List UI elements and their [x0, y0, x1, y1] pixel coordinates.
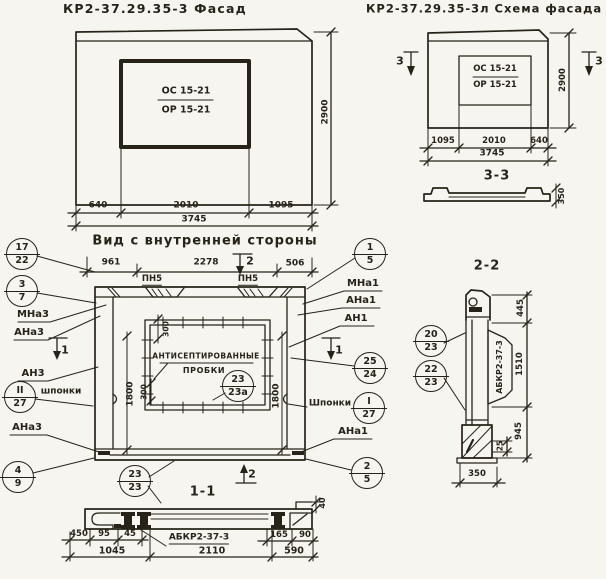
label-an1: АН1 — [344, 314, 367, 324]
callout-bottom-number: 22 — [15, 256, 28, 266]
sec22-dim-445: 445 — [517, 299, 526, 317]
callout-bottom-number: 27 — [13, 399, 26, 409]
sec22-dim-1510: 1510 — [516, 352, 525, 376]
scheme-section-label: 3-3 — [484, 170, 511, 183]
view-section-mark-1-right: 1 — [335, 345, 343, 356]
callout-top-number: 25 — [363, 357, 376, 367]
view-dim-300-top: 300 — [162, 321, 170, 337]
callout-top-number: 17 — [15, 243, 28, 253]
sec11-dim-90: 90 — [299, 531, 311, 540]
callout-bottom-number: 5 — [367, 256, 374, 266]
label-shponki-left: шпонки — [41, 388, 82, 397]
facade-dim-2010: 2010 — [173, 202, 198, 211]
callout-20-23: 20 23 — [415, 325, 447, 357]
facade-dim-height: 2900 — [322, 99, 331, 124]
view-section-mark-2-top: 2 — [246, 256, 254, 267]
view-dim-300-bottom: 300 — [140, 384, 148, 400]
scheme-section-mark-left: 3 — [396, 56, 404, 67]
sec11-profile — [85, 502, 312, 529]
scheme-dim-640: 640 — [530, 137, 548, 146]
callout-bottom-number: 23 — [424, 378, 437, 388]
view-leader-lines — [10, 256, 382, 503]
facade-dim-total: 3745 — [181, 216, 206, 225]
sec22-dim-350: 350 — [468, 470, 486, 479]
callout-1-5: 1 5 — [354, 238, 386, 270]
sec11-dim-450: 450 — [70, 530, 88, 539]
callout-top-number: 20 — [424, 330, 437, 340]
callout-22-23: 22 23 — [415, 360, 447, 392]
label-ana1-bottom: АНа1 — [338, 427, 368, 437]
callout-I-27: I 27 — [353, 392, 385, 424]
label-mna3: МНа3 — [17, 310, 49, 320]
sec11-dim-95: 95 — [98, 530, 110, 539]
facade-dim-640: 640 — [89, 202, 108, 211]
facade-panel-outline — [76, 29, 312, 205]
scheme-dim-2010: 2010 — [482, 137, 506, 146]
view-section-label-1-1: 1-1 — [190, 486, 217, 499]
facade-title: КР2-37.29.35-3 Фасад — [63, 3, 247, 16]
label-antiseptic-plugs-line2: ПРОБКИ — [183, 367, 225, 375]
callout-bottom-number: 23 — [424, 343, 437, 353]
sec22-dim-945: 945 — [515, 422, 524, 440]
callout-bottom-number: 24 — [363, 370, 376, 380]
callout-top-number: 22 — [424, 365, 437, 375]
scheme-dim-height: 2900 — [559, 68, 568, 92]
callout-top-number: II — [16, 386, 23, 396]
callout-4-9: 4 9 — [2, 461, 34, 493]
sec11-dim-2110: 2110 — [199, 546, 225, 556]
callout-top-number: 4 — [15, 466, 22, 476]
label-antiseptic-plugs-line1: АНТИСЕПТИРОВАННЫЕ — [152, 352, 259, 360]
callout-bottom-number: 7 — [19, 293, 26, 303]
scheme-window-mark-top: ОС 15-21 — [473, 65, 517, 74]
callout-top-number: 23 — [128, 470, 141, 480]
facade-window-mark-top: ОС 15-21 — [162, 86, 211, 96]
sec22-part-label: АБКР2-37-3 — [496, 340, 504, 394]
callout-top-number: 23 — [231, 375, 244, 385]
callout-25-24: 25 24 — [354, 352, 386, 384]
label-mna1: МНа1 — [347, 279, 379, 289]
scheme-profile-dim: 350 — [558, 188, 566, 205]
facade-dim-1095: 1095 — [268, 202, 293, 211]
facade-dimensions — [68, 28, 338, 231]
callout-23-23a: 23 23а — [222, 370, 254, 402]
callout-2-5: 2 5 — [351, 457, 383, 489]
callout-II-27: II 27 — [4, 381, 36, 413]
callout-bottom-number: 23а — [228, 388, 248, 398]
sec22-dim-25: 25 — [496, 441, 504, 451]
sec22-title: 2-2 — [474, 260, 501, 273]
view-dim-1800-right: 1800 — [273, 383, 282, 408]
view-section-mark-1-left: 1 — [61, 345, 69, 356]
sec11-dim-1045: 1045 — [99, 546, 125, 556]
label-ana3-bottom: АНа3 — [12, 423, 42, 433]
sec11-dim-45: 45 — [124, 530, 136, 539]
scheme-section-profile — [424, 184, 560, 208]
callout-bottom-number: 23 — [128, 483, 141, 493]
label-an3: АН3 — [21, 369, 44, 379]
view-dim-961: 961 — [102, 259, 121, 268]
sec11-dim-40: 40 — [319, 497, 327, 508]
scheme-dim-1095: 1095 — [431, 137, 455, 146]
view-loop-label-1: ПН5 — [142, 275, 162, 286]
scheme-dim-total: 3745 — [479, 150, 504, 159]
sec11-dim-165: 165 — [270, 531, 288, 540]
callout-3-7: 3 7 — [6, 275, 38, 307]
callout-top-number: I — [367, 397, 371, 407]
view-dim-506: 506 — [286, 260, 305, 269]
sec11-part-label: АБКР2-37-3 — [169, 534, 229, 545]
view-section-mark-2-bottom: 2 — [248, 469, 256, 480]
scheme-title: КР2-37.29.35-3л Схема фасада — [366, 3, 602, 15]
facade-window-mark-bottom: ОР 15-21 — [162, 105, 211, 115]
blueprint-sheet: КР2-37.29.35-3 Фасад ОС 15-21 ОР 15-21 2… — [0, 0, 606, 579]
sec11-dim-590: 590 — [284, 546, 304, 556]
view-title: Вид с внутренней стороны — [92, 235, 317, 248]
callout-bottom-number: 9 — [15, 479, 22, 489]
callout-17-22: 17 22 — [6, 238, 38, 270]
label-shponki-right: Шпонки — [309, 400, 351, 409]
label-ana1: АНа1 — [346, 296, 376, 306]
view-loop-label-2: ПН5 — [238, 275, 258, 286]
view-dim-2278: 2278 — [193, 259, 218, 268]
scheme-window-mark-bottom: ОР 15-21 — [473, 81, 517, 90]
callout-top-number: 1 — [367, 243, 374, 253]
callout-23-23: 23 23 — [119, 465, 151, 497]
callout-bottom-number: 5 — [364, 475, 371, 485]
callout-top-number: 2 — [364, 462, 371, 472]
scheme-section-mark-right: 3 — [595, 56, 603, 67]
view-dim-1800-left: 1800 — [127, 381, 136, 406]
callout-bottom-number: 27 — [362, 410, 375, 420]
label-ana3: АНа3 — [14, 328, 44, 338]
callout-top-number: 3 — [19, 280, 26, 290]
